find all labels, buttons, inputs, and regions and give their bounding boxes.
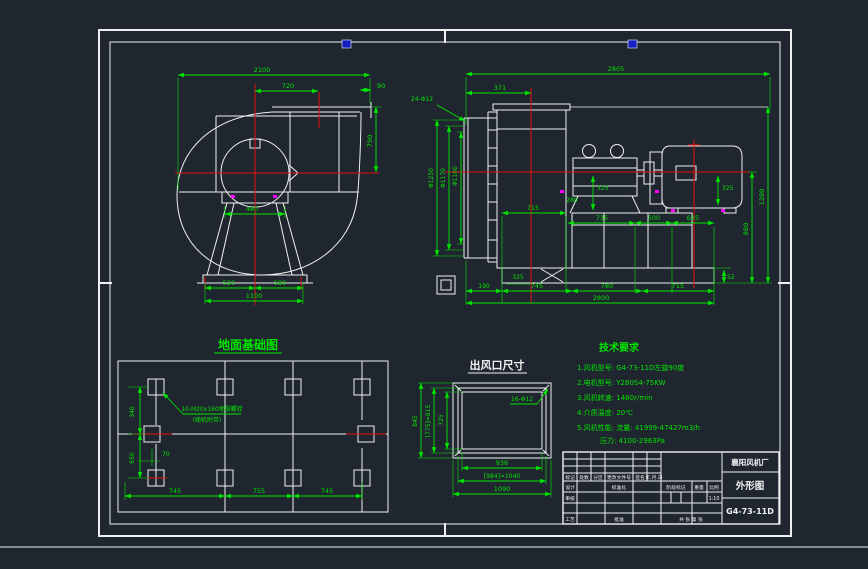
dim-motor-height: 325 [722, 185, 734, 192]
dim-base1: 745 [531, 282, 543, 290]
tech-requirements: 技术要求 1.风机型号: G4-73-11D左旋90度 2.电机型号: Y280… [577, 341, 700, 445]
foundation-note-2: (随机附带) [193, 416, 222, 424]
dim-outlet-height: 790 [366, 135, 374, 147]
centerlines [175, 84, 379, 305]
dim-bearing-height: 325 [597, 185, 609, 192]
label-scale: 比例 [709, 484, 719, 491]
foundation-note-1: 10-M20x160地脚螺栓 [181, 405, 243, 413]
label-date: 年.月.日 [645, 474, 662, 481]
dim-span2: 500 [648, 214, 660, 222]
company-name: 襄阳风机厂 [730, 457, 769, 467]
tech-line-2: 2.电机型号: Y280S4-75KW [577, 378, 666, 387]
label-craft: 工艺 [565, 517, 575, 523]
label-zone: 分区 [593, 474, 603, 481]
dim-outlet-bolt-w: [984]=1040 [484, 473, 521, 480]
dim-outlet-width: 720 [282, 82, 294, 90]
frame-mark-left [342, 40, 351, 48]
bolt-strip [488, 112, 497, 262]
label-mark: 标记 [565, 474, 575, 481]
label-change-doc: 更改文件号 [607, 474, 631, 481]
foundation-title: 地面基础图 [218, 337, 278, 352]
dim-flange-dia: Φ1250 [428, 168, 435, 188]
outlet-detail: 出风口尺寸 16-Φ12 936 [984]=1040 1090 725 [77… [412, 358, 551, 497]
dim-base-right: 580 [274, 279, 286, 287]
tech-line-5: 5.风机性能: 流量: 41999-47427m3/h [577, 423, 700, 432]
dim-total-width: 2100 [254, 66, 271, 74]
oil-cup [583, 145, 596, 158]
dim-inlet-depth: 371 [494, 84, 506, 92]
label-design: 设计 [565, 484, 575, 491]
fan-drawing-svg: 2100 720 90 790 480 520 580 1100 [0, 0, 868, 569]
tech-title: 技术要求 [599, 341, 640, 354]
dim-base2: 780 [601, 282, 613, 290]
dim-col1: 745 [169, 487, 181, 495]
anchor-mark [273, 195, 277, 198]
housing-grid [179, 112, 359, 192]
anchor-bolt-holes [144, 379, 374, 486]
dim-housing-width: 715 [527, 204, 539, 212]
dim-pedestal-width: 480 [246, 205, 258, 213]
drawing-title: 外形图 [735, 480, 765, 492]
scale-value: 1:10 [709, 496, 720, 502]
anchor-mark [231, 195, 235, 198]
label-review: 审核 [565, 495, 575, 502]
callout-inlet-bolts: 24-Φ12 [411, 96, 433, 103]
dim-total-length: 2805 [608, 65, 625, 73]
label-stage-mark: 阶段标记 [666, 484, 685, 491]
dim-plate-thickness: 52 [727, 274, 735, 281]
drawing-frame [0, 30, 868, 547]
label-signature: 签名 [635, 474, 645, 481]
label-qty: 处数 [579, 474, 589, 481]
tech-line-1: 1.风机型号: G4-73-11D左旋90度 [577, 363, 684, 372]
dim-base3: 715 [672, 282, 684, 290]
model-number: G4-73-11D [726, 507, 774, 516]
dim-span1: 735 [596, 214, 608, 222]
inlet-flange [464, 118, 497, 258]
dim-base-total: 1100 [246, 292, 263, 300]
dim-inlet-dia: Φ1100 [452, 166, 459, 186]
side-view: 2805 371 24-Φ12 Φ1250 Φ1170 Φ1100 715 73… [411, 65, 772, 305]
dim-base-total: 2800 [593, 294, 610, 302]
dim-outlet-bolt-h: [775]=815 [425, 405, 432, 438]
dim-lip: 90 [377, 82, 385, 90]
motor [650, 146, 742, 213]
label-approve: 批准 [614, 516, 624, 523]
dim-row-bottom: 650 [129, 452, 136, 464]
oil-cup [611, 145, 624, 158]
dim-span3: 625 [687, 214, 699, 222]
dim-col3: 745 [321, 487, 333, 495]
front-view: 2100 720 90 790 480 520 580 1100 [175, 66, 385, 305]
dim-base-left: 520 [223, 279, 235, 287]
dim-overall-height: 1280 [758, 189, 766, 206]
dim-front-offset: 190 [478, 283, 490, 290]
dim-outlet-outer-w: 1090 [494, 485, 511, 493]
dim-outlet-inner-w: 936 [496, 459, 508, 467]
base-frame [502, 268, 714, 283]
label-weight: 重量 [694, 484, 704, 491]
label-standardize: 标准化 [612, 484, 627, 491]
dim-col2: 755 [253, 487, 265, 495]
dim-outlet-outer-h: 845 [412, 415, 419, 427]
foundation-plan: 地面基础图 10-M20x160地脚螺栓 (随机附带) 340 650 70 7… [118, 337, 388, 512]
outlet-title: 出风口尺寸 [470, 358, 525, 372]
tech-line-4: 4.介质温度: 20℃ [577, 408, 633, 417]
label-sheet-info: 共 张 第 张 [679, 516, 703, 523]
dim-stand-depth: 280 [566, 197, 578, 204]
outlet-flange [453, 383, 551, 458]
cad-canvas: 2100 720 90 790 480 520 580 1100 [0, 0, 868, 569]
title-block: 标记 处数 分区 更改文件号 签名 年.月.日 设计 标准化 阶段标记 重量 比… [563, 452, 779, 524]
volute-scroll [177, 112, 361, 275]
motor-stand [572, 213, 692, 268]
dim-bolt-circle: Φ1170 [440, 168, 447, 188]
tech-line-3: 3.风机转速: 1480r/min [577, 393, 653, 402]
tech-line-6: 压力: 4100-2963Pa [600, 436, 665, 445]
dim-axis-height: 880 [742, 223, 750, 235]
dim-edge-offset: 70 [162, 451, 170, 458]
frame-mark-right [628, 40, 637, 48]
dim-base-pad: 325 [512, 274, 524, 281]
anchor-plate [437, 276, 455, 294]
callout-outlet-bolts: 16-Φ12 [511, 396, 533, 403]
dim-row-top: 340 [129, 406, 136, 418]
dim-outlet-inner-h: 725 [438, 414, 445, 426]
